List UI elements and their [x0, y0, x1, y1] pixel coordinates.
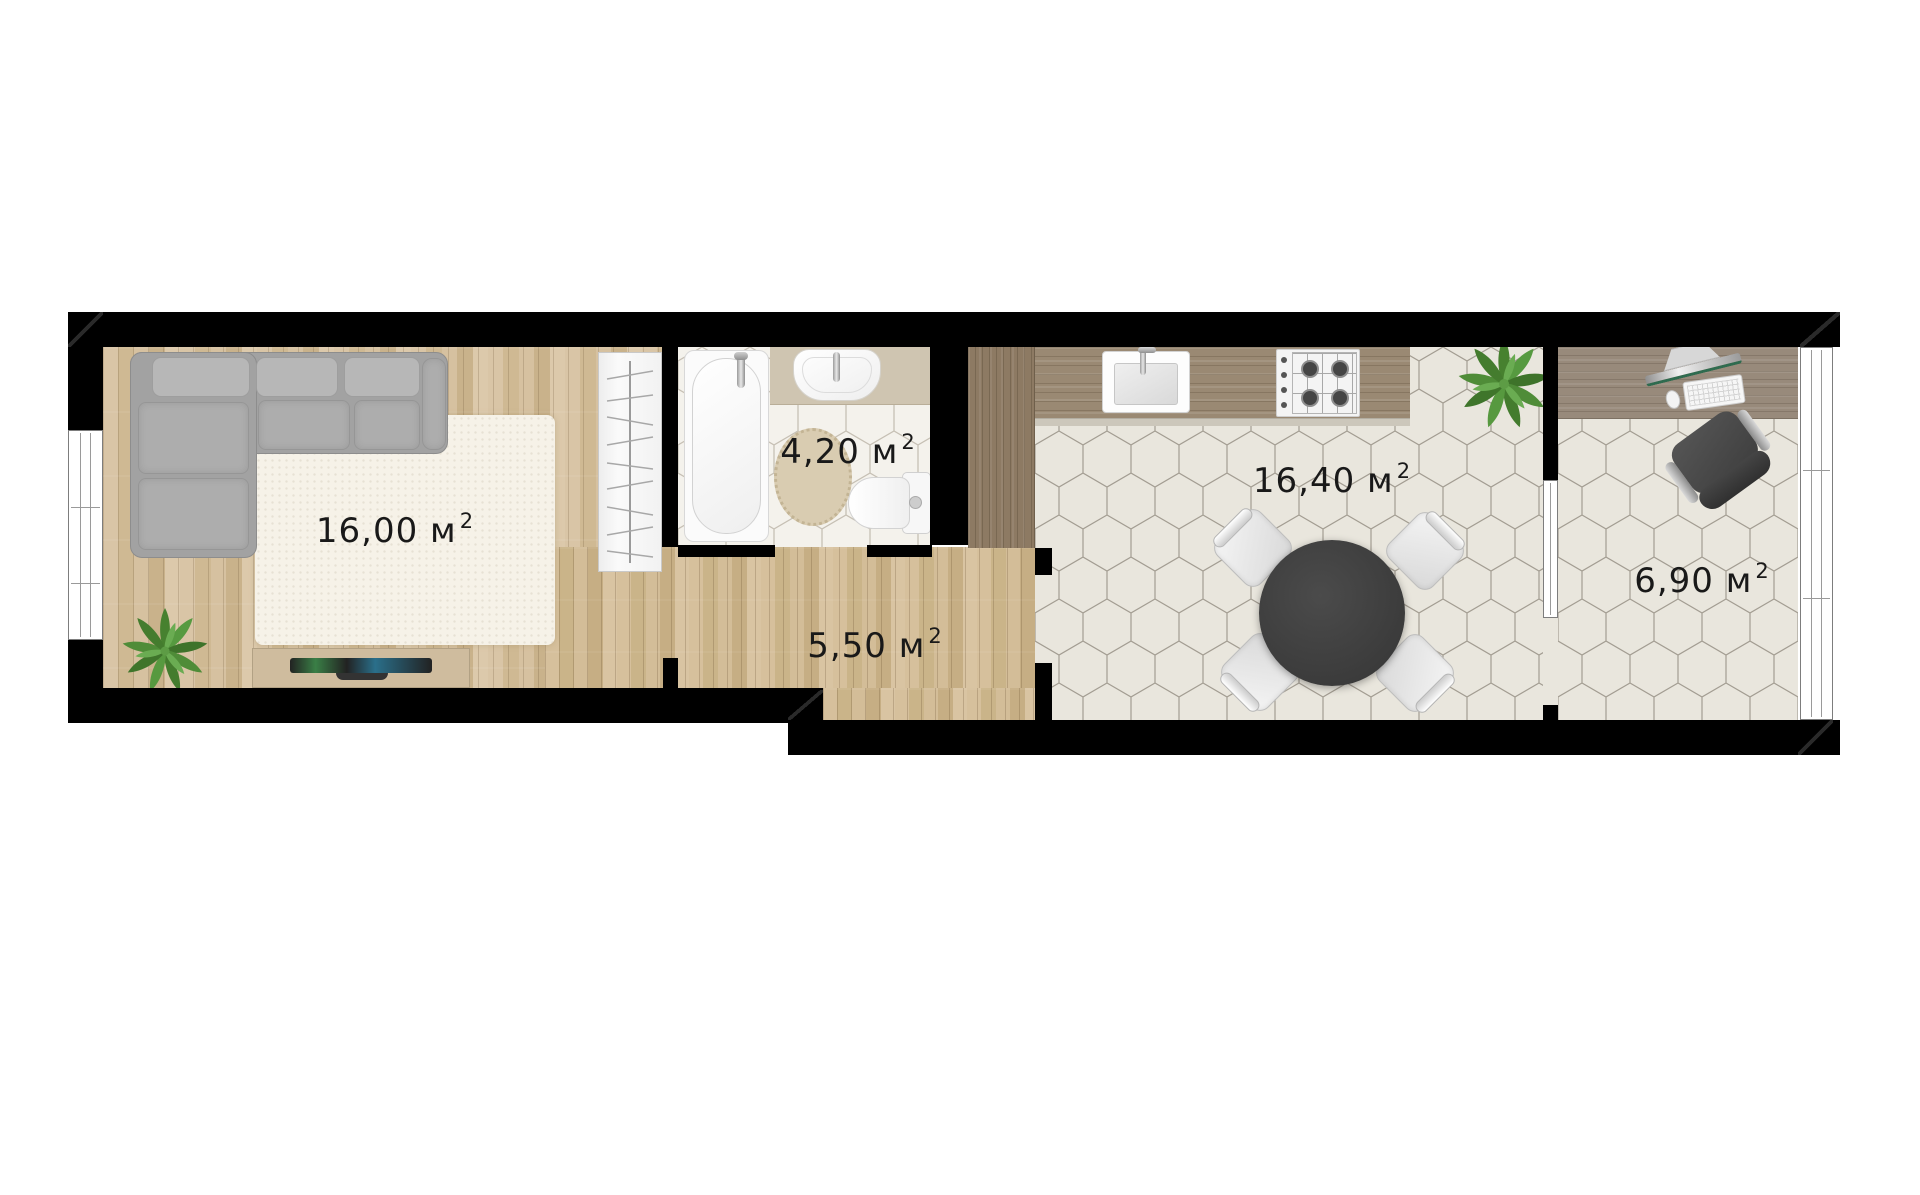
sofa-seat-cushion	[138, 478, 249, 550]
area-value: 16,40 м	[1253, 461, 1394, 501]
bathtub	[684, 350, 769, 542]
office-area-label: 6,90 м2	[1634, 561, 1770, 601]
stove-knob-icon	[1281, 387, 1287, 393]
area-superscript: 2	[1755, 559, 1769, 583]
wall-kitchen-office	[1543, 347, 1558, 480]
burner-icon	[1301, 360, 1319, 378]
area-superscript: 2	[460, 509, 474, 533]
area-value: 5,50 м	[807, 626, 925, 666]
sofa-armrest	[422, 358, 446, 450]
bathtub-basin	[692, 358, 761, 534]
sofa-seat-cushion	[354, 400, 420, 450]
sink-faucet-icon	[833, 352, 840, 382]
bathroom-area-label: 4,20 м2	[780, 432, 916, 472]
burner-icon	[1331, 389, 1349, 407]
kitchen-faucet-spout-icon	[1138, 347, 1156, 353]
toilet-bowl	[848, 477, 910, 529]
sofa-back-pillow	[256, 357, 338, 397]
tv-icon	[290, 658, 432, 673]
window-living-room	[68, 430, 103, 640]
area-superscript: 2	[901, 430, 915, 454]
wall-stub-living-hall	[663, 658, 678, 688]
window-frame-line	[1550, 483, 1551, 615]
tv-soundbar-icon	[336, 673, 388, 680]
area-value: 16,00 м	[316, 511, 457, 551]
dining-table	[1259, 540, 1405, 686]
sofa-back-pillow	[152, 357, 250, 397]
wardrobe	[598, 352, 662, 572]
kitchen-sink	[1102, 351, 1190, 413]
living-room-area-label: 16,00 м2	[316, 511, 474, 551]
area-value: 6,90 м	[1634, 561, 1752, 601]
plant-icon	[1456, 336, 1552, 432]
corner-mark-icon	[1800, 312, 1840, 347]
wall-bathroom-right	[930, 347, 968, 545]
kitchen-sink-basin	[1114, 363, 1178, 405]
wall-stub-kitchen-top	[1035, 548, 1052, 575]
window-frame-line	[80, 433, 81, 637]
area-value: 4,20 м	[780, 432, 898, 472]
stove-knob-icon	[1281, 357, 1287, 363]
area-superscript: 2	[1397, 459, 1411, 483]
wall-stub-office-bottom	[1543, 705, 1558, 720]
sofa-seat-cushion	[138, 402, 249, 474]
stove	[1276, 349, 1360, 417]
wall-bathroom-bottom-right	[867, 545, 932, 557]
wall-bathroom-left	[662, 347, 678, 547]
corner-mark-icon	[1798, 720, 1833, 755]
kitchen-area-label: 16,40 м2	[1253, 461, 1411, 501]
window-frame-line	[90, 433, 91, 637]
bathtub-faucet-head-icon	[734, 352, 748, 360]
hallway-area-label: 5,50 м2	[807, 626, 943, 666]
sofa-back-pillow	[344, 357, 420, 397]
wall-stub-kitchen-bottom	[1035, 663, 1052, 720]
office-door-threshold	[1543, 618, 1558, 705]
wall-top	[68, 312, 1840, 347]
window-frame-line	[1811, 350, 1812, 717]
burner-icon	[1301, 389, 1319, 407]
window-frame-line	[1821, 350, 1822, 717]
plant-icon	[120, 606, 210, 696]
stove-knob-icon	[1281, 402, 1287, 408]
toilet-flush-button-icon	[909, 496, 922, 509]
wall-bathroom-bottom-left	[678, 545, 775, 557]
corner-mark-icon	[68, 312, 103, 347]
window-frame-line	[1803, 470, 1830, 471]
window-frame-line	[1803, 598, 1830, 599]
window-office	[1800, 347, 1833, 720]
hanger-rail-icon	[599, 353, 661, 571]
kitchen-tall-cabinet	[968, 347, 1035, 548]
window-kitchen-office-partition	[1543, 480, 1558, 618]
wall-bottom-left	[68, 688, 788, 723]
stove-knob-icon	[1281, 372, 1287, 378]
sofa-seat-cushion	[258, 400, 350, 450]
kitchen-counter-edge	[1035, 418, 1410, 426]
burner-icon	[1331, 360, 1349, 378]
stove-grate	[1292, 352, 1357, 414]
window-frame-line	[71, 507, 100, 508]
window-frame-line	[71, 583, 100, 584]
vestibule-floor	[823, 688, 1037, 720]
area-superscript: 2	[928, 624, 942, 648]
floor-plan: 16,00 м2 4,20 м2 5,50 м2 16,40 м2 6,90 м…	[0, 0, 1920, 1195]
corner-mark-icon	[788, 690, 823, 720]
wall-bottom-right	[823, 720, 1840, 755]
